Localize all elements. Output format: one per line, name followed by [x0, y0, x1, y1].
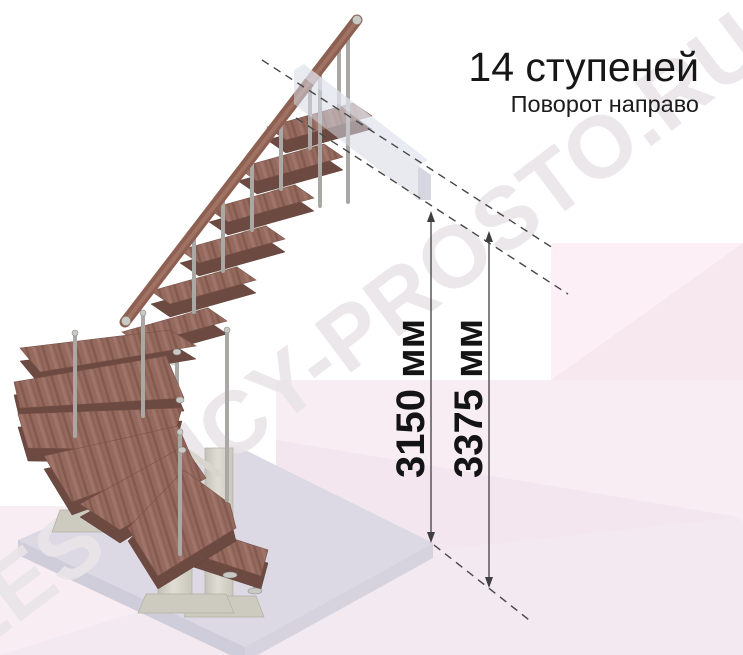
- header: 14 ступеней Поворот направо: [468, 44, 699, 117]
- handrail-top-cap: [353, 16, 362, 25]
- bottom-column-base: [138, 594, 234, 613]
- pivot-joint-1: [173, 349, 181, 355]
- dimension-3375-label: 3375 мм: [447, 319, 491, 478]
- leg-base-2: [248, 588, 262, 594]
- baluster-cap-4: [177, 429, 183, 435]
- slab-end: [418, 166, 431, 200]
- diagram-canvas: LESTNICY-PROSTO.RU: [0, 0, 743, 655]
- pivot-joint-2: [176, 397, 184, 403]
- baluster-cap-3: [224, 327, 230, 333]
- page-title: 14 ступеней: [468, 44, 699, 90]
- handrail-end-cap: [122, 317, 131, 326]
- baluster-cap-1: [72, 330, 78, 336]
- staircase-diagram: LESTNICY-PROSTO.RU: [0, 0, 743, 655]
- page-subtitle: Поворот направо: [511, 91, 699, 117]
- baluster-cap-2: [140, 310, 146, 316]
- pivot-joint-3: [178, 447, 186, 453]
- dimension-3150-label: 3150 мм: [389, 319, 433, 478]
- leg-base-1: [223, 572, 237, 578]
